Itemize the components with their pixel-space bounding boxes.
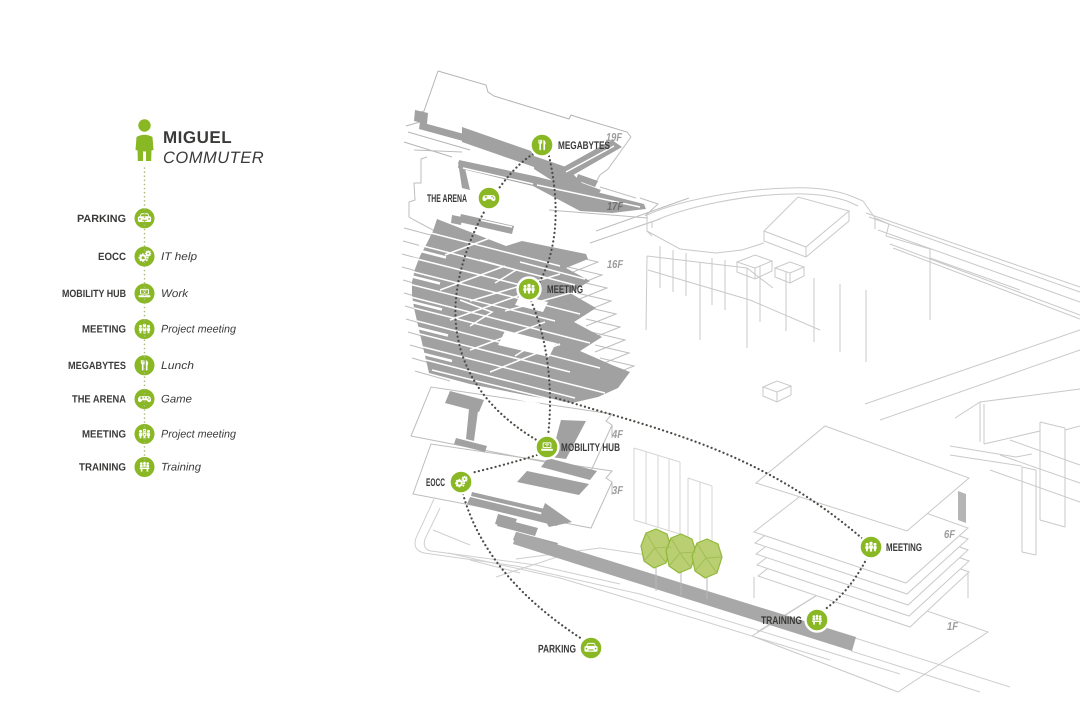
svg-text:THE ARENA: THE ARENA: [72, 394, 126, 406]
svg-text:1F: 1F: [947, 621, 959, 633]
svg-text:THE ARENA: THE ARENA: [427, 193, 467, 205]
svg-text:3F: 3F: [612, 485, 624, 497]
svg-text:MEETING: MEETING: [547, 284, 583, 296]
svg-text:6F: 6F: [944, 529, 956, 541]
svg-text:MEETING: MEETING: [886, 542, 922, 554]
svg-text:Lunch: Lunch: [161, 360, 194, 372]
svg-text:MIGUEL: MIGUEL: [163, 128, 232, 147]
svg-text:TRAINING: TRAINING: [79, 462, 126, 474]
svg-text:PARKING: PARKING: [77, 213, 126, 225]
svg-text:TRAINING: TRAINING: [761, 615, 802, 627]
svg-text:Work: Work: [161, 288, 189, 300]
svg-text:Project meeting: Project meeting: [161, 429, 237, 441]
svg-text:16F: 16F: [607, 259, 624, 271]
svg-text:COMMUTER: COMMUTER: [163, 149, 264, 167]
svg-text:Training: Training: [161, 462, 202, 474]
svg-text:MEETING: MEETING: [82, 324, 126, 336]
svg-text:Project meeting: Project meeting: [161, 324, 237, 336]
svg-text:19F: 19F: [606, 132, 623, 144]
svg-text:EOCC: EOCC: [98, 251, 126, 263]
svg-text:EOCC: EOCC: [426, 477, 445, 489]
svg-text:4F: 4F: [611, 429, 624, 441]
svg-text:MOBILITY HUB: MOBILITY HUB: [561, 442, 620, 454]
svg-text:17F: 17F: [607, 201, 624, 213]
svg-text:MOBILITY HUB: MOBILITY HUB: [62, 288, 126, 300]
svg-text:IT help: IT help: [161, 251, 197, 263]
svg-text:MEETING: MEETING: [82, 429, 126, 441]
svg-text:MEGABYTES: MEGABYTES: [558, 140, 610, 152]
svg-text:Game: Game: [161, 394, 192, 406]
svg-text:MEGABYTES: MEGABYTES: [68, 360, 126, 372]
svg-text:PARKING: PARKING: [538, 644, 576, 656]
